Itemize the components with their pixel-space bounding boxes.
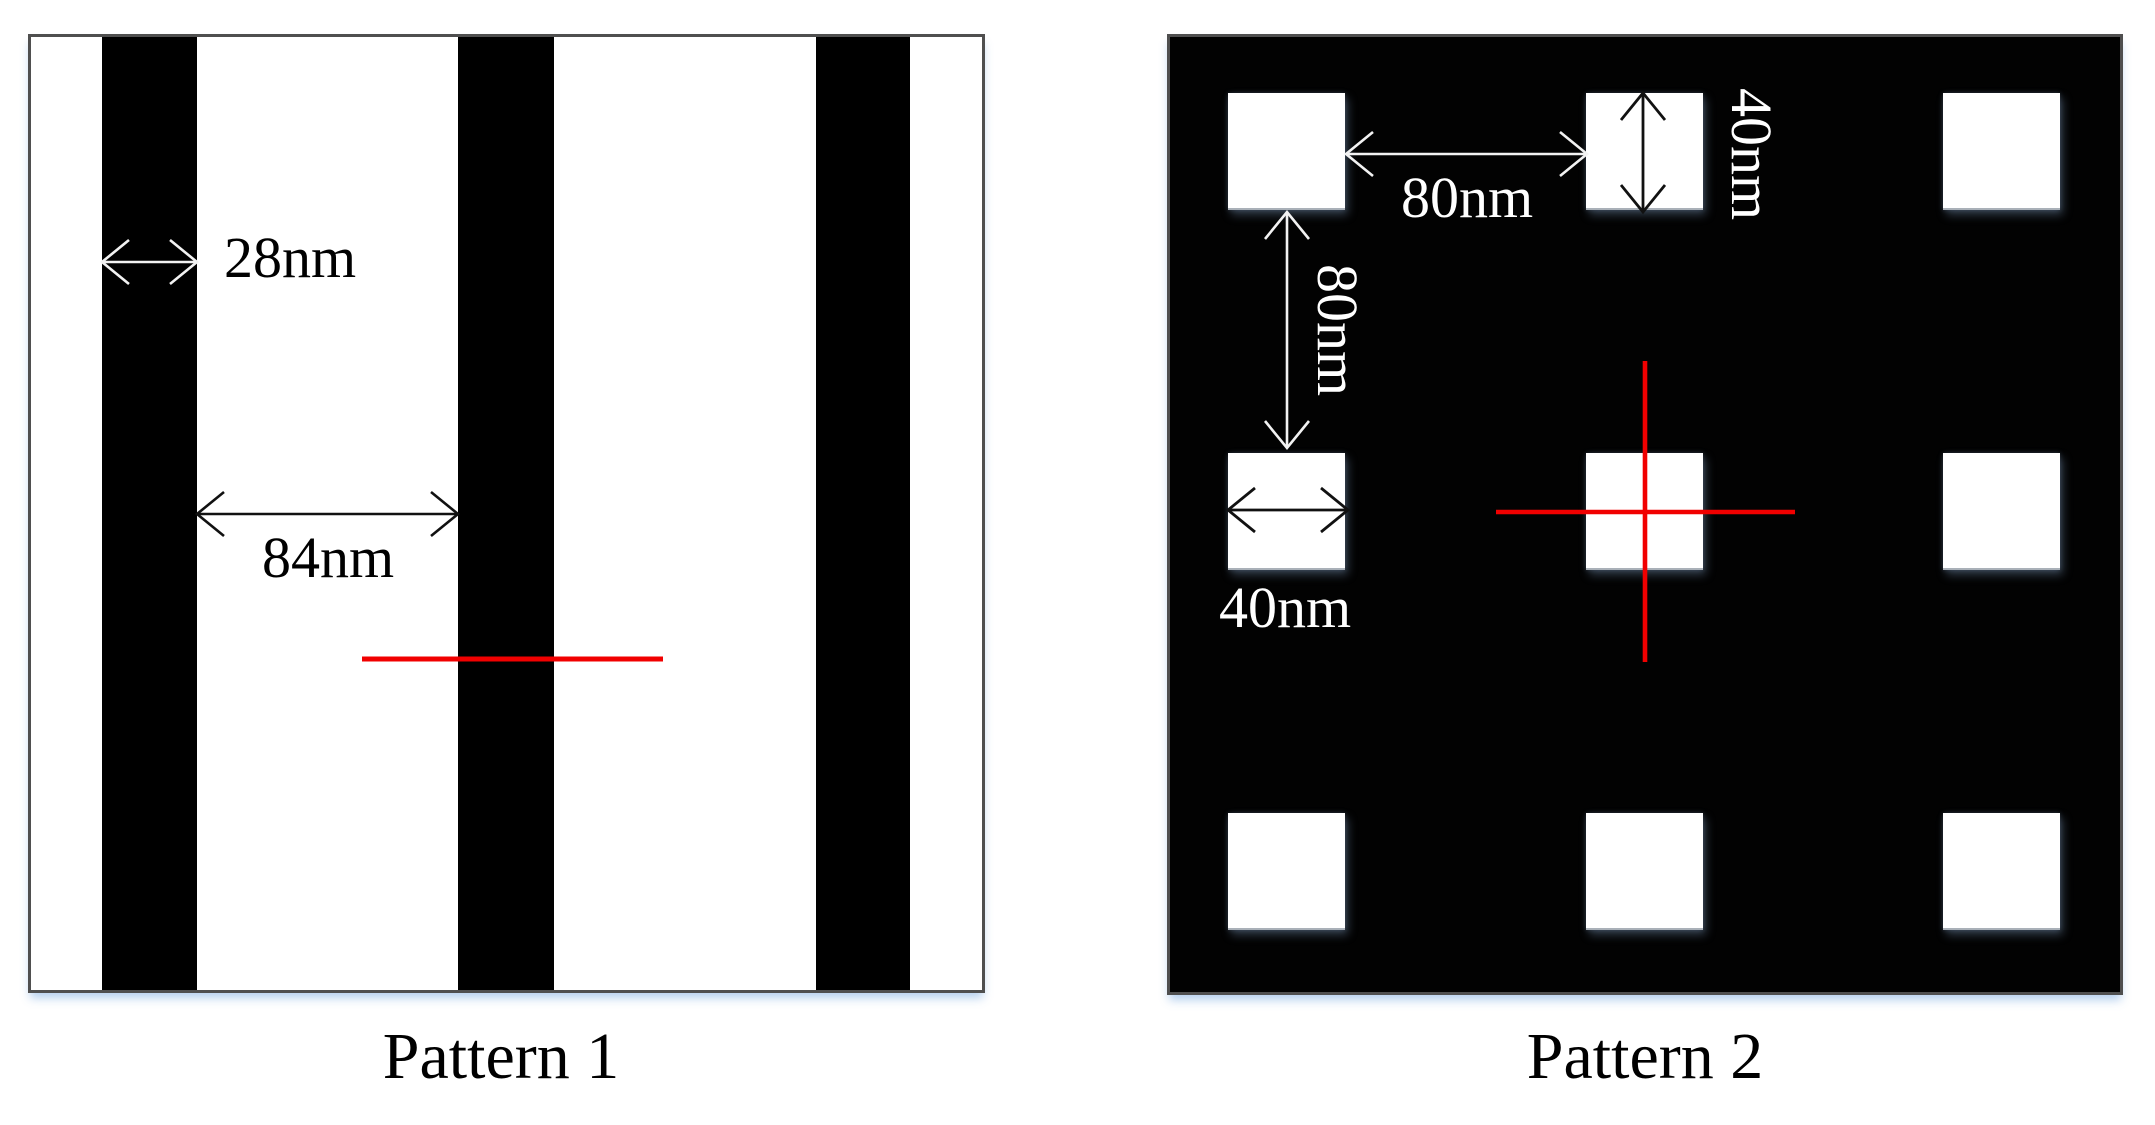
pattern1-caption: Pattern 1 — [301, 1024, 701, 1090]
pattern2-square-r2c2 — [1586, 453, 1703, 570]
dim-label-40nm-vertical: 40nm — [1722, 86, 1780, 222]
pattern1-area: 28nm 84nm — [31, 37, 982, 990]
pattern2-square-r2c3 — [1943, 453, 2060, 570]
pattern2-square-r2c1 — [1228, 453, 1345, 570]
pattern2-square-r1c2 — [1586, 93, 1703, 210]
pattern1-stripe-2 — [458, 37, 554, 990]
dim-label-80nm-horizontal: 80nm — [1399, 169, 1535, 227]
dim-arrow-80nm-vertical — [1265, 212, 1309, 448]
pattern2-square-r1c3 — [1943, 93, 2060, 210]
dim-label-40nm-horizontal: 40nm — [1217, 579, 1353, 637]
pattern2-box: 80nm 40nm 80nm 40nm — [1167, 34, 2123, 995]
pattern2-square-r3c3 — [1943, 813, 2060, 930]
pattern2-caption: Pattern 2 — [1445, 1024, 1845, 1090]
dim-label-80nm-vertical: 80nm — [1308, 262, 1366, 398]
pattern2-square-r3c1 — [1228, 813, 1345, 930]
pattern1-box: 28nm 84nm — [28, 34, 985, 993]
pattern2-area: 80nm 40nm 80nm 40nm — [1170, 37, 2120, 992]
pattern2-square-r1c1 — [1228, 93, 1345, 210]
dim-label-28nm: 28nm — [222, 229, 358, 287]
figure-canvas: 28nm 84nm — [0, 0, 2155, 1125]
pattern1-stripe-1 — [102, 37, 197, 990]
pattern1-stripe-3 — [816, 37, 910, 990]
dim-label-84nm: 84nm — [260, 529, 396, 587]
pattern2-square-r3c2 — [1586, 813, 1703, 930]
